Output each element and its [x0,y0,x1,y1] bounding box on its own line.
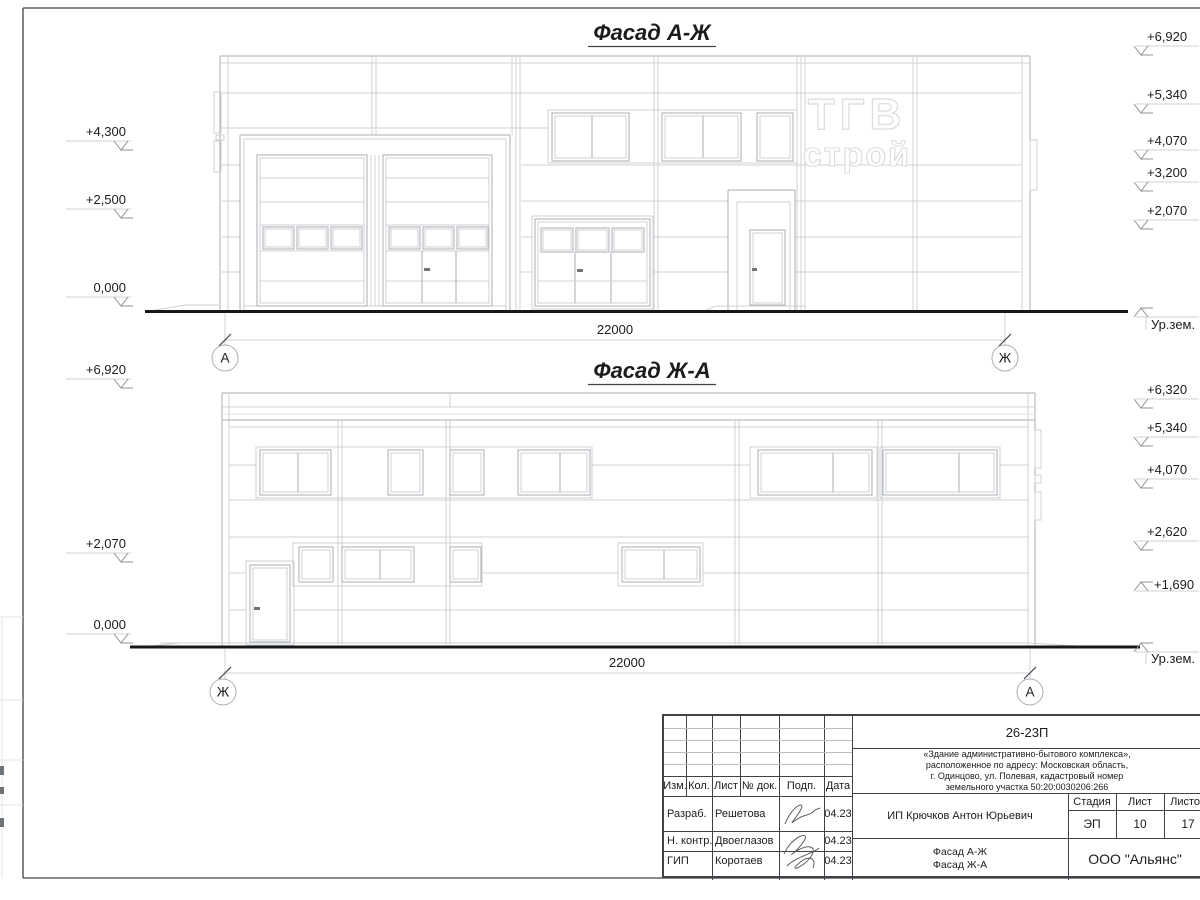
title-block: Изм. Кол. Лист № док. Подп. Дата Разраб.… [662,714,1200,878]
lower-window-band [293,543,703,586]
elevation-mark: +3,200 [1134,165,1199,191]
svg-text:Ур.зем.: Ур.зем. [1151,651,1195,666]
svg-text:+6,920: +6,920 [1147,29,1187,44]
downpipe [1035,492,1041,520]
svg-text:+5,340: +5,340 [1147,420,1187,435]
svg-text:0,000: 0,000 [93,280,126,295]
elevation-mark: +4,070 [1134,133,1199,159]
elevation-mark: +5,340 [1134,87,1199,113]
sectional-door-1 [257,155,367,306]
svg-text:Ж: Ж [999,351,1012,366]
elevation-mark: +2,500 [66,192,133,218]
svg-text:строй: строй [803,136,911,174]
dimension-label: 22000 [609,655,645,670]
client-name: ИП Крючков Антон Юрьевич [852,793,1068,838]
sheet-label: Лист [1116,793,1164,810]
organization-name: ООО "Альянс" [1068,838,1200,880]
door-handle-icon [424,268,430,271]
elevation-mark: 0,000 [66,617,133,643]
dimension-top: 22000 [219,313,1011,349]
signature-reshetova [785,805,820,824]
sectional-door-2 [383,155,492,306]
ground-level-mark: Ур.зем. [1134,643,1199,666]
stage-value: ЭП [1068,810,1116,838]
svg-text:ТГВ: ТГВ [808,90,907,139]
upper-window-band [256,447,1000,498]
svg-text:+2,070: +2,070 [86,536,126,551]
col-header-list: Лист [712,776,740,796]
svg-text:+6,920: +6,920 [86,362,126,377]
date-normcontrol: 04.23 [824,831,852,851]
svg-text:+3,200: +3,200 [1147,165,1187,180]
elevation-mark: +6,920 [66,362,133,388]
elevation-mark: +2,620 [1134,524,1199,550]
downpipe [1035,475,1041,483]
role-gip: ГИП [664,851,712,871]
door-handle-icon [752,268,757,271]
col-header-kol: Кол. [686,776,712,796]
svg-text:А: А [220,351,229,366]
col-header-doc: № док. [740,776,779,796]
door-handle-icon [254,607,260,610]
entrance-portal [706,190,806,310]
col-header-izm: Изм. [664,776,686,796]
elevation-mark: +6,320 [1134,382,1199,408]
axis-bubble-left: Ж [210,679,236,705]
sheets-total: 17 [1164,810,1200,838]
doc-number: 26-23П [852,716,1200,748]
elevation-mark: +1,690 [1134,577,1199,592]
svg-text:Ур.зем.: Ур.зем. [1151,317,1195,332]
elevation-mark: +4,300 [66,124,133,150]
elevation-mark: +4,070 [1134,462,1199,488]
name-gip: Коротаев [712,851,779,871]
drawing-sheet: { "colors": { "ink": "#1b1c1e", "line_li… [0,0,1200,900]
role-developer: Разраб. [664,796,712,831]
axis-bubble-left: А [212,345,238,371]
svg-text:+4,070: +4,070 [1147,462,1187,477]
sheet-title: Фасад А-Ж Фасад Ж-А [852,838,1068,880]
facade-bottom-title: Фасад Ж-А [593,358,710,383]
garage-portal [240,135,510,310]
svg-text:+1,690: +1,690 [1154,577,1194,592]
date-gip: 04.23 [824,851,852,871]
dimension-label: 22000 [597,322,633,337]
stage-label: Стадия [1068,793,1116,810]
facade-bottom-drawing: Фасад Ж-А [66,358,1199,705]
facade-top-title: Фасад А-Ж [593,20,712,45]
svg-text:+6,320: +6,320 [1147,382,1187,397]
col-header-data: Дата [824,776,852,796]
name-normcontrol: Двоеглазов [712,831,779,851]
svg-text:+4,300: +4,300 [86,124,126,139]
svg-text:+2,500: +2,500 [86,192,126,207]
sheet-number: 10 [1116,810,1164,838]
elevation-mark: +5,340 [1134,420,1199,446]
signatures [779,796,824,880]
svg-text:+5,340: +5,340 [1147,87,1187,102]
door-handle-icon [577,269,583,272]
svg-text:Ж: Ж [217,685,230,700]
facade-top-drawing: Фасад А-Ж [66,20,1199,371]
sheets-label: Листов [1164,793,1200,810]
top-window-band [548,110,797,163]
axis-bubble-right: Ж [992,345,1018,371]
signature-korotaev [784,835,819,868]
name-developer: Решетова [712,796,779,831]
axis-bubble-right: А [1017,679,1043,705]
svg-text:0,000: 0,000 [93,617,126,632]
elevation-mark: +2,070 [66,536,133,562]
ground-level-mark: Ур.зем. [1134,308,1199,332]
elevation-mark: 0,000 [66,280,133,306]
middle-garage-door [532,216,653,309]
downpipe [1030,140,1037,190]
role-normcontrol: Н. контр. [664,831,712,851]
svg-text:+4,070: +4,070 [1147,133,1187,148]
date-developer: 04.23 [824,796,852,831]
project-description: «Здание административно-бытового комплек… [852,748,1200,793]
svg-text:+2,070: +2,070 [1147,203,1187,218]
dimension-bottom: 22000 [219,649,1036,682]
col-header-podp: Подп. [779,776,824,796]
elevation-mark: +2,070 [1134,203,1199,229]
elevation-mark: +6,920 [1134,29,1199,55]
downpipe [1035,430,1041,468]
svg-text:А: А [1025,685,1034,700]
tgv-stroy-logo: ТГВ строй [803,90,911,174]
entrance-door [246,561,294,645]
svg-text:+2,620: +2,620 [1147,524,1187,539]
